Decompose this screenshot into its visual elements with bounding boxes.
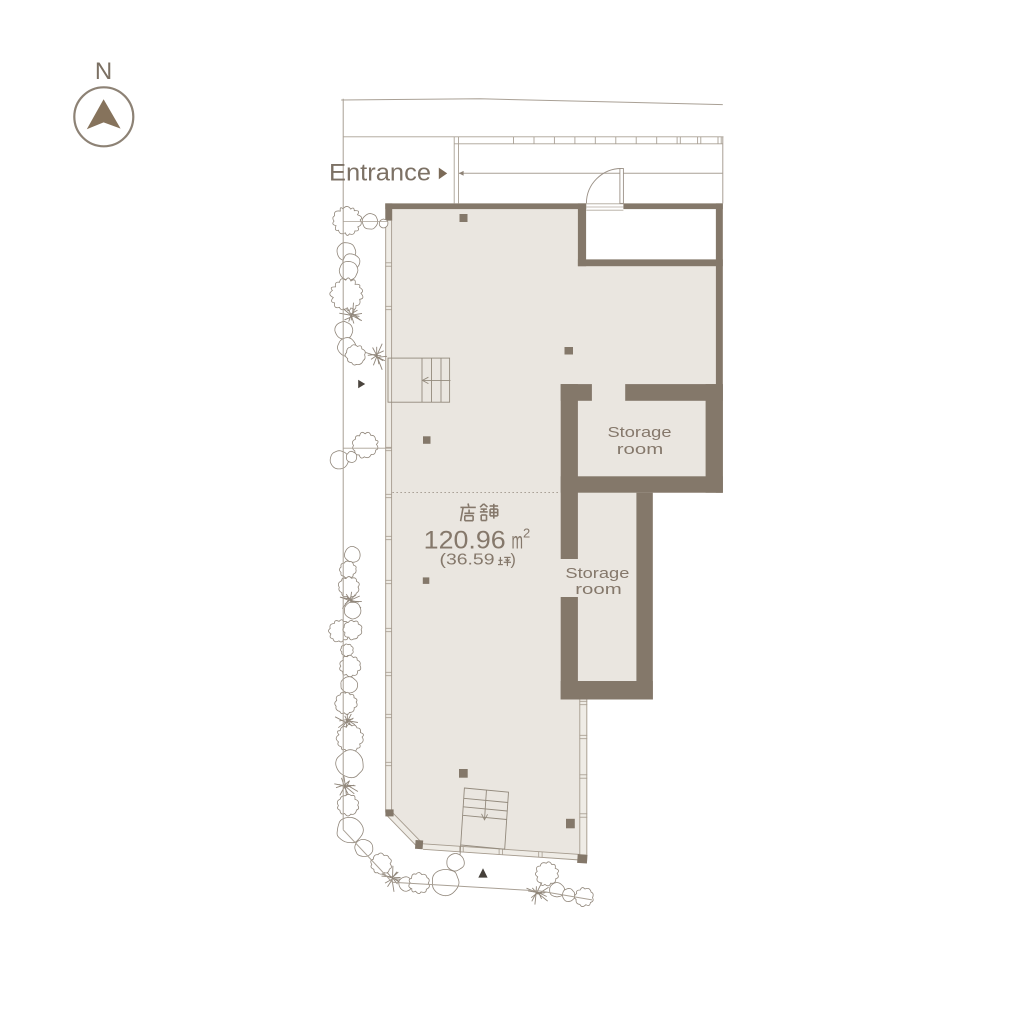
svg-text:Storage: Storage: [565, 566, 629, 582]
svg-text:N: N: [95, 58, 112, 85]
svg-text:m: m: [512, 528, 524, 554]
svg-text:Storage: Storage: [608, 425, 672, 441]
svg-text:2: 2: [523, 526, 530, 541]
svg-text:room: room: [575, 582, 622, 598]
svg-text:): ): [511, 552, 516, 569]
svg-text:120.96: 120.96: [424, 527, 506, 555]
svg-text:(36.59: (36.59: [440, 552, 495, 569]
svg-text:Entrance: Entrance: [329, 160, 431, 187]
svg-text:room: room: [617, 442, 664, 458]
